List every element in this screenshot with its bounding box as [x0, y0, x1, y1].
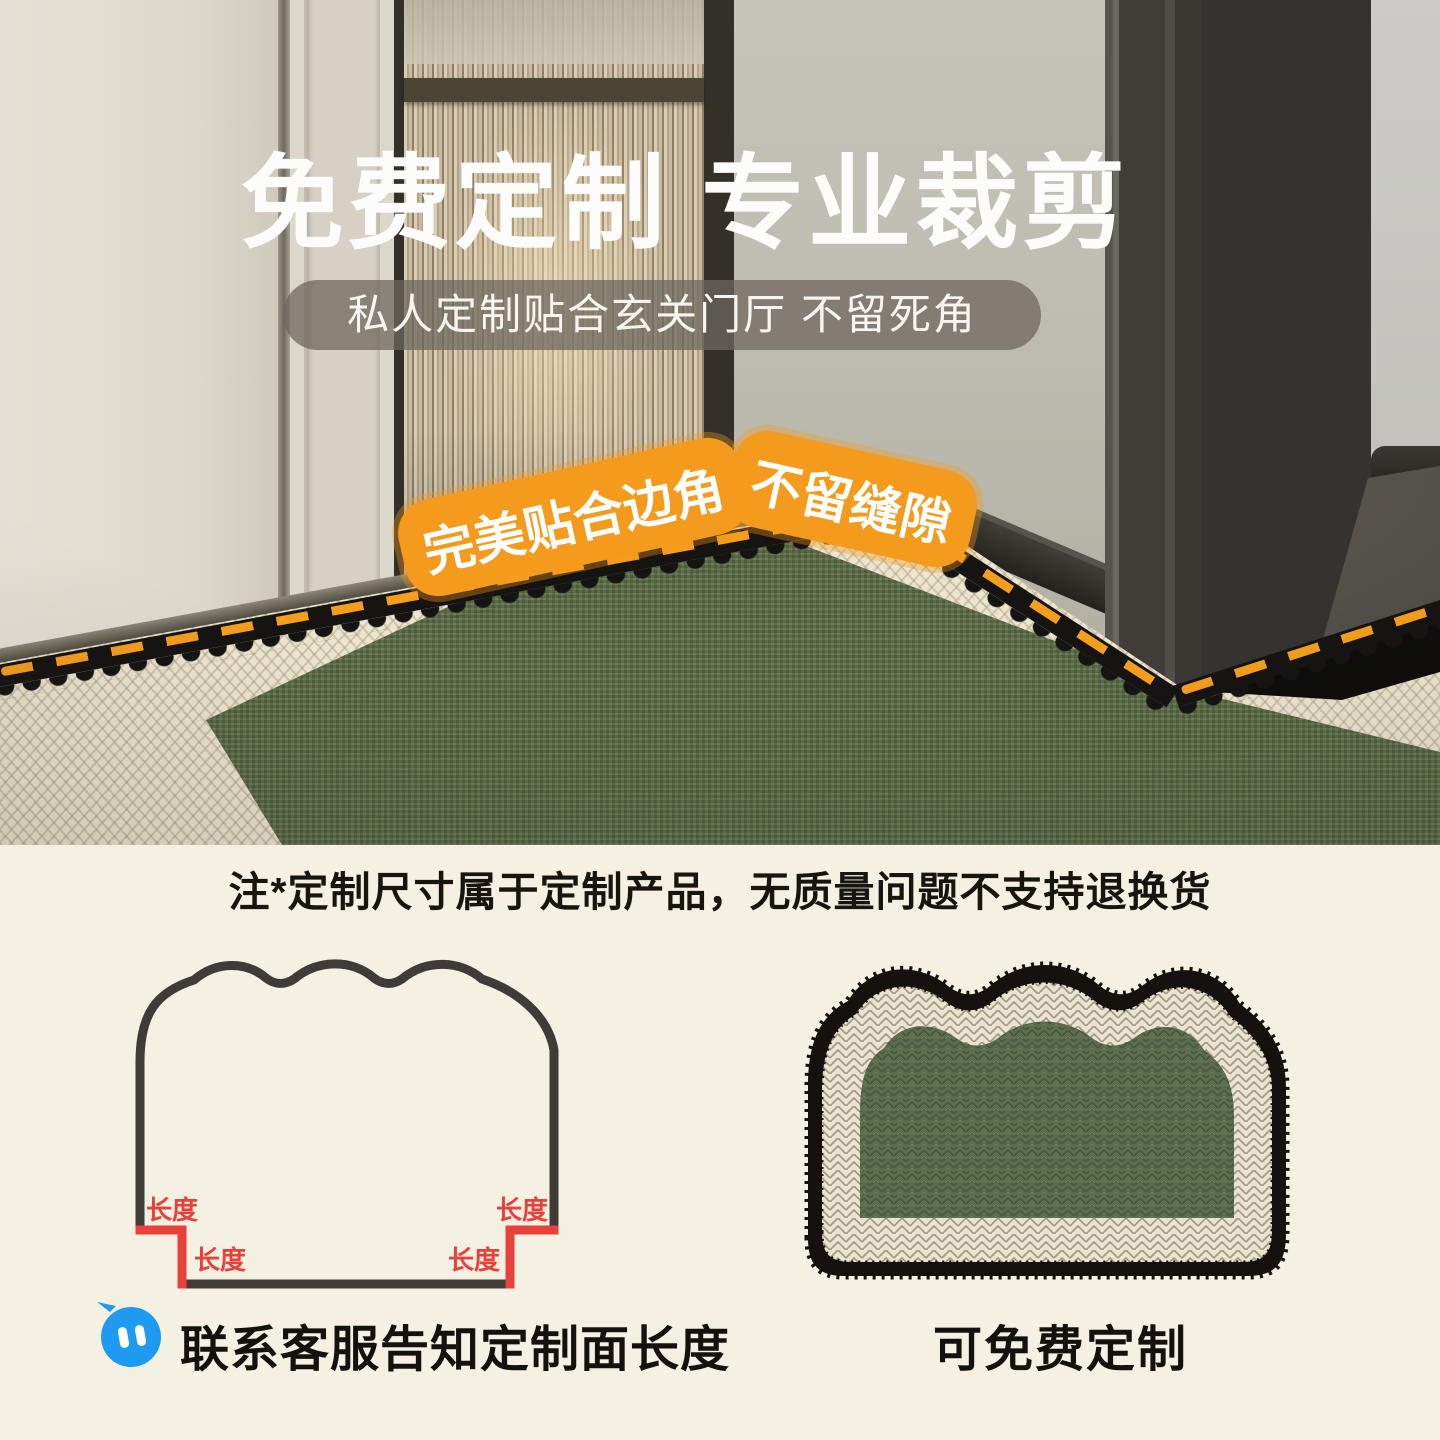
length-label-top-right: 长度: [496, 1195, 548, 1225]
contact-service-label: 联系客服告知定制面长度: [180, 1310, 730, 1381]
length-label-bottom-left: 长度: [194, 1245, 246, 1275]
custom-rug-preview: [798, 946, 1296, 1294]
rug-outline-path: [140, 964, 554, 1230]
free-customization-label: 可免费定制: [933, 1310, 1188, 1381]
hero-photo: 免费定制 专业裁剪 私人定制贴合玄关门厅 不留死角 完美贴合边角 不留缝隙: [0, 0, 1440, 845]
customer-service-chat-icon: [94, 1300, 164, 1370]
rug-green-center: [860, 1022, 1234, 1219]
length-label-top-left: 长度: [146, 1195, 198, 1225]
right-wall: [1371, 0, 1440, 470]
page-subtitle: 私人定制贴合玄关门厅 不留死角: [283, 280, 1041, 350]
custom-size-notice: 注*定制尺寸属于定制产品，无质量问题不支持退换货: [0, 858, 1440, 918]
page-title: 免费定制 专业裁剪: [0, 120, 1370, 269]
product-detail-page: 免费定制 专业裁剪 私人定制贴合玄关门厅 不留死角 完美贴合边角 不留缝隙 注*…: [0, 0, 1440, 1440]
measurement-diagram: 长度 长度 长度 长度: [106, 938, 586, 1302]
glass-top-rail: [404, 78, 704, 102]
length-label-bottom-right: 长度: [448, 1245, 500, 1275]
glass-shelf-reflection: [404, 0, 704, 64]
